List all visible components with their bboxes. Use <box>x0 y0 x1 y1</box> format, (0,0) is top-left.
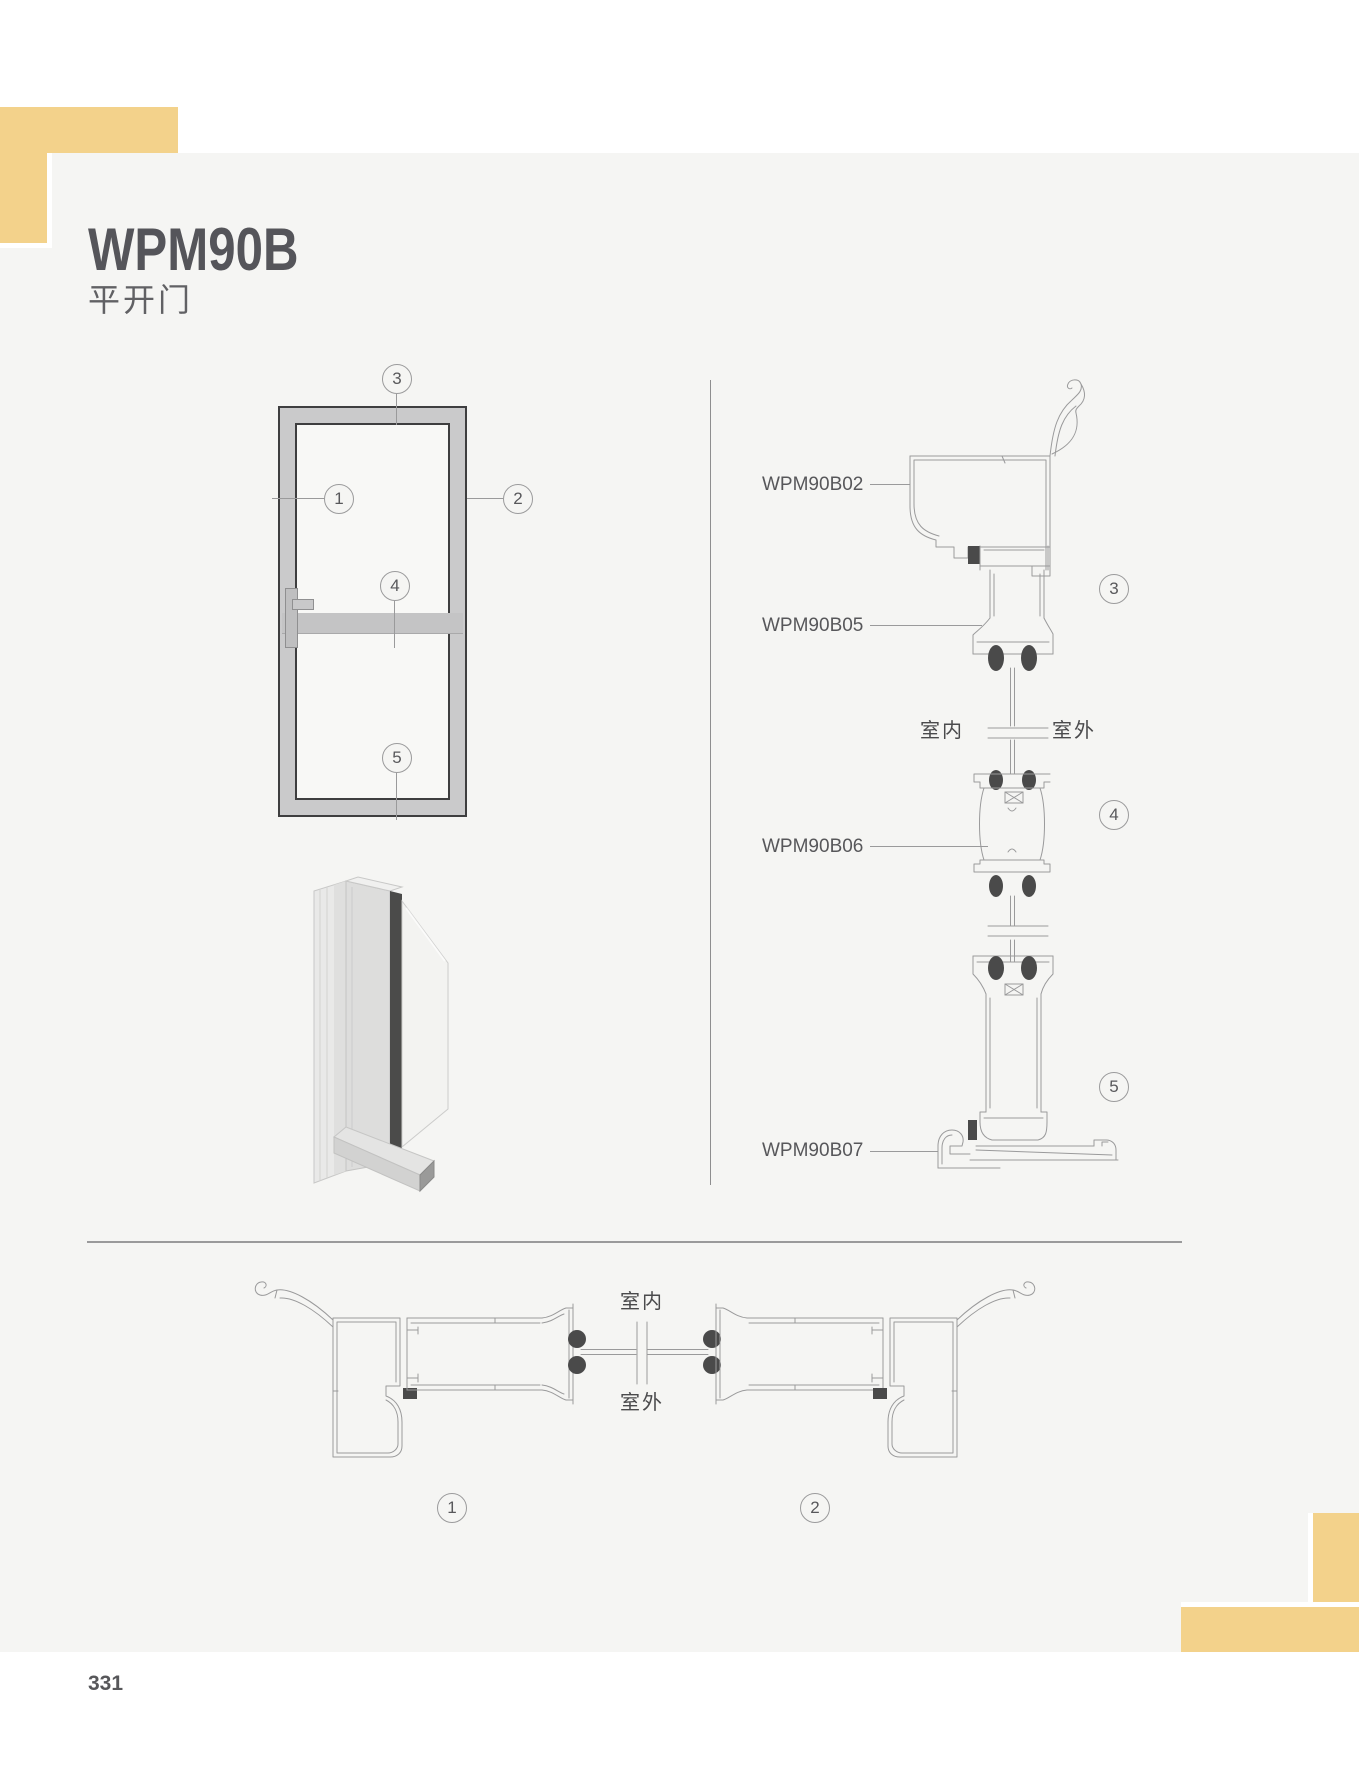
leader-wpm90b02 <box>870 484 910 485</box>
page-title: WPM90B <box>88 222 298 278</box>
elevation-callout-1: 1 <box>324 484 354 514</box>
outdoor-label-horizontal: 室外 <box>620 1391 664 1415</box>
glass-pane <box>402 901 448 1147</box>
brush-seal <box>968 546 980 564</box>
section-callout-5: 5 <box>1099 1072 1129 1102</box>
glazing-channel <box>390 891 402 1163</box>
title-block: WPM90B 平开门 <box>88 222 345 317</box>
section-callout-1: 1 <box>437 1493 467 1523</box>
leader-line-2 <box>467 498 503 499</box>
door-sash <box>295 423 450 800</box>
section-callout-3: 3 <box>1099 574 1129 604</box>
indoor-label-horizontal: 室内 <box>620 1290 664 1314</box>
leader-line-1 <box>272 498 324 499</box>
outdoor-label-vertical: 室外 <box>1052 719 1096 743</box>
leader-wpm90b05 <box>870 625 982 626</box>
elevation-callout-3: 3 <box>382 364 412 394</box>
elevation-callout-5: 5 <box>382 743 412 773</box>
leader-line-4 <box>394 601 395 648</box>
door-mid-rail <box>282 613 463 634</box>
leader-wpm90b07 <box>870 1151 938 1152</box>
leader-line-5 <box>396 773 397 820</box>
profile-label-wpm90b06: WPM90B06 <box>762 836 863 858</box>
profile-label-wpm90b07: WPM90B07 <box>762 1140 863 1162</box>
door-handle-lever <box>292 599 314 610</box>
door-elevation-drawing <box>278 406 467 817</box>
catalog-page: WPM90B 平开门 1 2 3 4 5 <box>0 0 1359 1772</box>
leader-wpm90b06 <box>870 846 988 847</box>
profile-isometric-photo <box>300 875 460 1195</box>
profile-label-wpm90b02: WPM90B02 <box>762 474 863 496</box>
corner-accent-bottom-right-horizontal <box>1181 1602 1359 1652</box>
vertical-divider-line <box>710 380 711 1185</box>
section-callout-4: 4 <box>1099 800 1129 830</box>
section-callout-2: 2 <box>800 1493 830 1523</box>
vertical-section-drawing <box>880 370 1120 1180</box>
corner-accent-top-left-horizontal <box>0 107 178 153</box>
page-number: 331 <box>88 1672 123 1696</box>
door-handle-plate <box>285 588 298 648</box>
profile-label-wpm90b05: WPM90B05 <box>762 615 863 637</box>
elevation-callout-2: 2 <box>503 484 533 514</box>
elevation-callout-4: 4 <box>380 571 410 601</box>
horizontal-separator-line <box>87 1241 1182 1243</box>
indoor-label-vertical: 室内 <box>920 719 964 743</box>
leader-line-3 <box>396 394 397 425</box>
page-subtitle: 平开门 <box>88 283 345 317</box>
